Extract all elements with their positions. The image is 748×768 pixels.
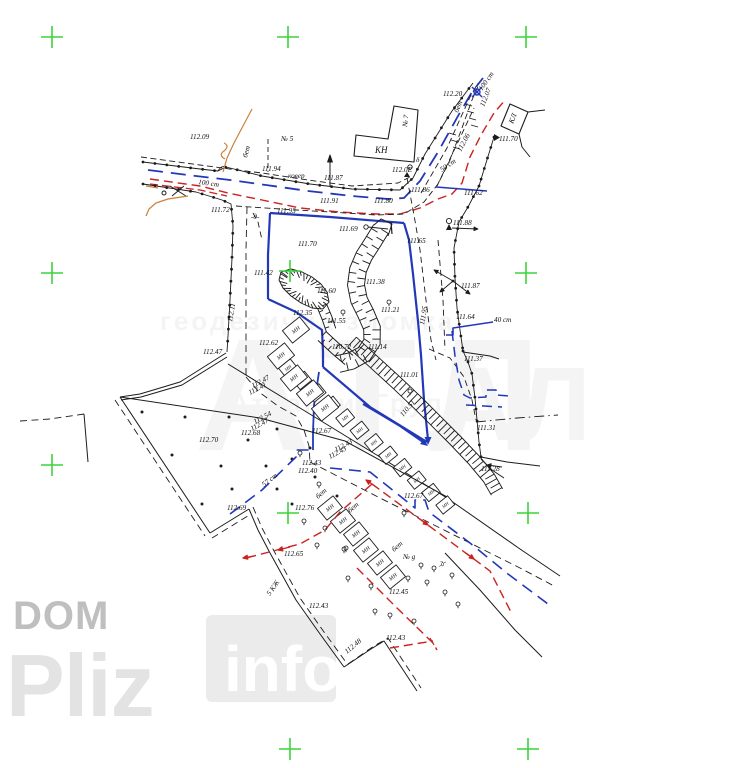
svg-text:112.09: 112.09 — [190, 133, 210, 141]
svg-text:№ 7: № 7 — [401, 114, 411, 128]
svg-text:DOM: DOM — [13, 594, 109, 638]
svg-text:111.86: 111.86 — [411, 186, 430, 194]
svg-text:112.62: 112.62 — [259, 339, 279, 347]
svg-text:111.88: 111.88 — [453, 219, 472, 227]
svg-text:112.43: 112.43 — [309, 602, 329, 610]
svg-text:112.70: 112.70 — [199, 436, 219, 444]
svg-text:112.0Е: 112.0Е — [392, 166, 413, 174]
svg-text:111.42: 111.42 — [254, 269, 273, 277]
svg-text:112.47: 112.47 — [203, 348, 223, 356]
svg-text:111.87: 111.87 — [461, 282, 480, 290]
svg-text:111.64: 111.64 — [456, 313, 475, 321]
svg-text:111.91: 111.91 — [320, 197, 339, 205]
svg-text:112.68: 112.68 — [241, 429, 261, 437]
svg-text:112.35: 112.35 — [293, 309, 313, 317]
svg-text:112.76: 112.76 — [295, 504, 315, 512]
svg-text:111.21: 111.21 — [381, 306, 400, 314]
svg-text:40 cm: 40 cm — [494, 316, 511, 324]
svg-text:111.60: 111.60 — [317, 287, 336, 295]
svg-text:ковер: ковер — [288, 172, 305, 180]
svg-text:111.31: 111.31 — [477, 424, 496, 432]
svg-text:112.45: 112.45 — [389, 588, 409, 596]
svg-text:111.38: 111.38 — [366, 278, 385, 286]
svg-text:112.40: 112.40 — [298, 467, 318, 475]
svg-text:111.37: 111.37 — [464, 355, 483, 363]
svg-text:111.69: 111.69 — [339, 225, 358, 233]
svg-text:112.69: 112.69 — [227, 504, 247, 512]
svg-text:112.43: 112.43 — [386, 634, 406, 642]
svg-text:112.43: 112.43 — [302, 459, 322, 467]
svg-text:№ 5: № 5 — [280, 135, 294, 143]
svg-text:112.67: 112.67 — [312, 427, 332, 435]
svg-text:-д-: -д- — [251, 213, 260, 221]
svg-text:112.20: 112.20 — [443, 90, 463, 98]
svg-text:111.70: 111.70 — [499, 135, 518, 143]
svg-text:Pliz: Pliz — [6, 636, 154, 735]
svg-text:111.80: 111.80 — [374, 197, 393, 205]
svg-text:111.72: 111.72 — [211, 206, 230, 214]
svg-text:№ g: № g — [402, 553, 416, 561]
svg-text:111.14: 111.14 — [368, 343, 387, 351]
svg-text:112.67: 112.67 — [404, 492, 424, 500]
svg-text:111.93: 111.93 — [277, 207, 296, 215]
svg-text:110.72: 110.72 — [332, 343, 352, 351]
svg-text:111.70: 111.70 — [298, 240, 317, 248]
svg-text:111.55: 111.55 — [327, 317, 346, 325]
svg-text:КН: КН — [374, 145, 388, 155]
svg-text:info: info — [224, 633, 341, 705]
svg-text:111.65: 111.65 — [407, 237, 426, 245]
svg-text:111.62: 111.62 — [464, 189, 483, 197]
svg-text:АЛ: АЛ — [440, 346, 591, 463]
svg-text:111.28: 111.28 — [481, 465, 500, 473]
svg-text:111.87: 111.87 — [324, 174, 343, 182]
svg-text:112.65: 112.65 — [284, 550, 304, 558]
svg-text:111.01: 111.01 — [400, 371, 418, 379]
svg-text:111.94: 111.94 — [262, 165, 281, 173]
